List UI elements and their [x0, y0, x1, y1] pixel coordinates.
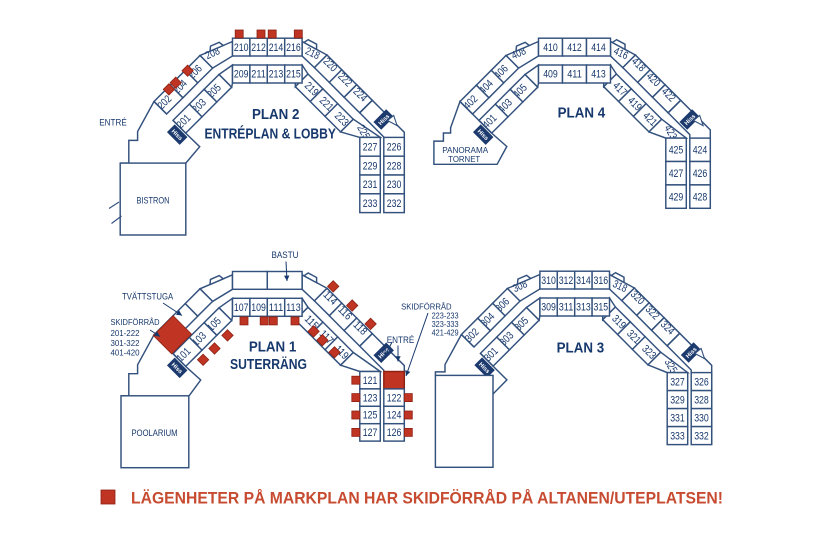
svg-text:429: 429: [669, 191, 684, 203]
svg-text:311: 311: [559, 302, 574, 314]
svg-text:109: 109: [251, 302, 266, 314]
svg-text:POOLARIUM: POOLARIUM: [132, 428, 178, 438]
svg-text:125: 125: [363, 410, 378, 422]
svg-text:124: 124: [387, 410, 402, 422]
svg-text:231: 231: [363, 179, 378, 191]
svg-text:401-420: 401-420: [111, 347, 140, 357]
svg-text:424: 424: [693, 145, 708, 157]
svg-text:314: 314: [576, 275, 591, 287]
svg-text:328: 328: [694, 394, 709, 406]
svg-text:SUTERRÄNG: SUTERRÄNG: [230, 356, 307, 373]
svg-text:ENTRÉPLAN & LOBBY: ENTRÉPLAN & LOBBY: [204, 125, 336, 142]
svg-text:327: 327: [670, 376, 685, 388]
svg-text:330: 330: [694, 412, 709, 424]
svg-text:TVÄTTSTUGA: TVÄTTSTUGA: [122, 292, 173, 302]
svg-text:214: 214: [269, 42, 284, 54]
svg-text:215: 215: [286, 69, 301, 81]
svg-text:107: 107: [234, 302, 249, 314]
svg-text:121: 121: [363, 375, 378, 387]
svg-text:TORNET: TORNET: [448, 154, 481, 164]
svg-text:PLAN 3: PLAN 3: [557, 339, 605, 356]
svg-text:309: 309: [541, 302, 556, 314]
svg-text:111: 111: [269, 302, 284, 314]
svg-text:PLAN 1: PLAN 1: [249, 339, 297, 356]
svg-text:122: 122: [387, 392, 402, 404]
svg-text:127: 127: [363, 427, 378, 439]
svg-text:212: 212: [251, 42, 266, 54]
svg-text:413: 413: [591, 69, 606, 81]
svg-text:229: 229: [363, 160, 378, 172]
svg-text:428: 428: [693, 191, 708, 203]
svg-text:SKIDFÖRRÅD: SKIDFÖRRÅD: [111, 317, 160, 327]
svg-text:BASTU: BASTU: [272, 250, 299, 260]
svg-text:425: 425: [669, 145, 684, 157]
svg-text:410: 410: [543, 42, 558, 54]
svg-text:315: 315: [594, 302, 609, 314]
svg-text:421-429: 421-429: [432, 328, 459, 338]
svg-text:LÄGENHETER PÅ MARKPLAN HAR SKI: LÄGENHETER PÅ MARKPLAN HAR SKIDFÖRRÅD PÅ…: [131, 489, 723, 508]
svg-text:233: 233: [363, 198, 378, 210]
svg-text:326: 326: [694, 376, 709, 388]
svg-text:310: 310: [541, 275, 556, 287]
svg-text:316: 316: [594, 275, 609, 287]
svg-text:226: 226: [387, 142, 402, 154]
svg-text:412: 412: [567, 42, 582, 54]
svg-text:113: 113: [286, 302, 301, 314]
svg-text:331: 331: [670, 412, 685, 424]
svg-text:312: 312: [559, 275, 574, 287]
svg-text:ENTRÉ: ENTRÉ: [99, 118, 127, 128]
svg-text:209: 209: [234, 69, 249, 81]
svg-text:411: 411: [567, 69, 582, 81]
svg-text:228: 228: [387, 160, 402, 172]
svg-text:414: 414: [591, 42, 606, 54]
svg-text:BISTRON: BISTRON: [137, 195, 170, 205]
svg-text:216: 216: [286, 42, 301, 54]
svg-text:427: 427: [669, 168, 684, 180]
svg-text:409: 409: [543, 69, 558, 81]
svg-text:230: 230: [387, 179, 402, 191]
svg-text:313: 313: [576, 302, 591, 314]
svg-text:232: 232: [387, 198, 402, 210]
svg-text:333: 333: [670, 430, 685, 442]
svg-text:126: 126: [387, 427, 402, 439]
svg-text:201-222: 201-222: [111, 328, 140, 338]
svg-text:PLAN 4: PLAN 4: [558, 105, 606, 122]
svg-text:210: 210: [234, 42, 249, 54]
svg-text:211: 211: [251, 69, 266, 81]
svg-text:301-322: 301-322: [111, 338, 140, 348]
svg-text:426: 426: [693, 168, 708, 180]
svg-text:227: 227: [363, 142, 378, 154]
svg-text:PLAN 2: PLAN 2: [252, 106, 300, 123]
svg-text:332: 332: [694, 430, 709, 442]
svg-text:329: 329: [670, 394, 685, 406]
svg-text:123: 123: [363, 392, 378, 404]
svg-text:213: 213: [269, 69, 284, 81]
